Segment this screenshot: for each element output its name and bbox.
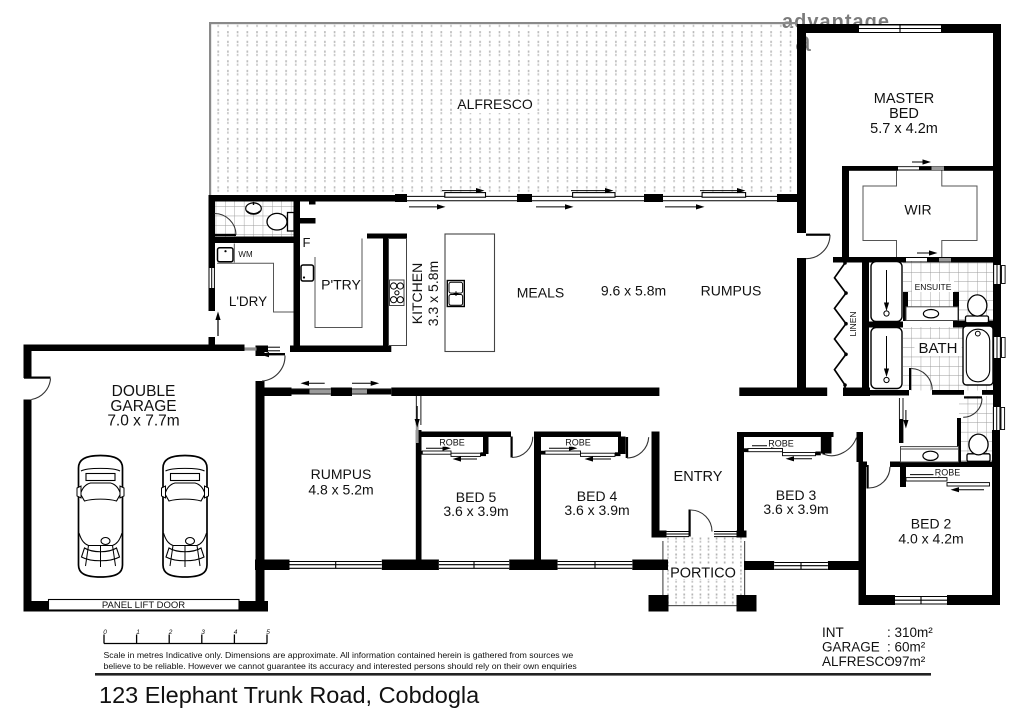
svg-text:RUMPUS: RUMPUS bbox=[701, 283, 762, 299]
svg-text:5.7 x 4.2m: 5.7 x 4.2m bbox=[870, 121, 938, 137]
svg-text:3.6 x 3.9m: 3.6 x 3.9m bbox=[564, 502, 629, 518]
svg-text:ALFRESCO: ALFRESCO bbox=[457, 96, 533, 112]
svg-text:L'DRY: L'DRY bbox=[229, 294, 267, 309]
svg-text:1: 1 bbox=[136, 629, 140, 636]
svg-text:3.6 x 3.9m: 3.6 x 3.9m bbox=[443, 503, 508, 519]
svg-text:ROBE: ROBE bbox=[768, 438, 794, 448]
svg-text:3.3 x 5.8m: 3.3 x 5.8m bbox=[425, 261, 441, 326]
svg-text:ALFRESCO: ALFRESCO bbox=[822, 654, 895, 669]
svg-text:BATH: BATH bbox=[919, 340, 958, 357]
svg-text:Scale in metres Indicative onl: Scale in metres Indicative only. Dimensi… bbox=[104, 650, 574, 660]
svg-text:F: F bbox=[303, 235, 311, 250]
svg-text:believe to be reliable. Howev: believe to be reliable. However we canno… bbox=[104, 661, 578, 671]
svg-text:5: 5 bbox=[266, 629, 270, 636]
svg-text:9.6 x 5.8m: 9.6 x 5.8m bbox=[601, 283, 666, 299]
svg-text:4: 4 bbox=[234, 629, 238, 636]
svg-text:: 60m²: : 60m² bbox=[887, 640, 926, 655]
svg-text:WIR: WIR bbox=[904, 202, 931, 218]
svg-text:P'TRY: P'TRY bbox=[321, 277, 361, 293]
svg-text:4.8 x 5.2m: 4.8 x 5.2m bbox=[308, 482, 373, 498]
svg-text:ROBE: ROBE bbox=[935, 468, 961, 478]
svg-text:ENSUITE: ENSUITE bbox=[915, 282, 952, 292]
svg-text:RUMPUS: RUMPUS bbox=[311, 466, 372, 482]
svg-text:PORTICO: PORTICO bbox=[670, 566, 736, 582]
svg-text:3.6 x 3.9m: 3.6 x 3.9m bbox=[763, 501, 828, 517]
svg-text:INT: INT bbox=[822, 625, 844, 640]
svg-text:123 Elephant Trunk Road, Cobdo: 123 Elephant Trunk Road, Cobdogla bbox=[99, 682, 480, 708]
svg-text:BED 2: BED 2 bbox=[911, 516, 952, 532]
svg-text:2: 2 bbox=[168, 629, 173, 636]
svg-text:ROBE: ROBE bbox=[439, 438, 465, 448]
svg-text:MASTER: MASTER bbox=[874, 91, 934, 107]
svg-text:: 97m²: : 97m² bbox=[887, 654, 926, 669]
svg-text:: 310m²: : 310m² bbox=[887, 625, 933, 640]
svg-text:MEALS: MEALS bbox=[517, 285, 564, 301]
svg-text:0: 0 bbox=[103, 629, 107, 636]
svg-text:7.0 x 7.7m: 7.0 x 7.7m bbox=[107, 413, 179, 430]
svg-text:PANEL LIFT DOOR: PANEL LIFT DOOR bbox=[102, 600, 185, 611]
svg-text:BED: BED bbox=[889, 106, 919, 122]
svg-text:ENTRY: ENTRY bbox=[674, 469, 723, 485]
svg-text:WM: WM bbox=[238, 250, 253, 259]
svg-text:4.0 x 4.2m: 4.0 x 4.2m bbox=[898, 531, 963, 547]
svg-text:3: 3 bbox=[201, 629, 205, 636]
svg-text:ROBE: ROBE bbox=[565, 438, 591, 448]
svg-text:GARAGE: GARAGE bbox=[822, 640, 880, 655]
svg-text:KITCHEN: KITCHEN bbox=[409, 263, 425, 324]
svg-text:LINEN: LINEN bbox=[848, 311, 858, 336]
